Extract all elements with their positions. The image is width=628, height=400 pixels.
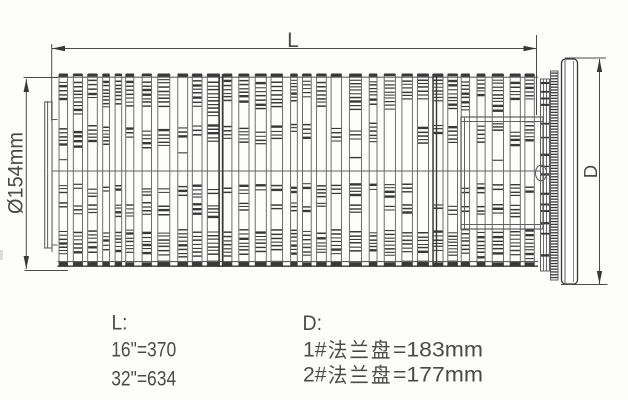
svg-text:L: L: [287, 29, 299, 52]
svg-text:32"=634: 32"=634: [111, 367, 176, 390]
svg-text:D:: D:: [303, 312, 323, 335]
svg-text:=183mm: =183mm: [393, 339, 483, 362]
svg-text:16"=370: 16"=370: [111, 338, 176, 361]
svg-text:1#: 1#: [303, 339, 327, 362]
svg-text:Ø154mm: Ø154mm: [4, 132, 28, 214]
svg-text:D: D: [580, 165, 601, 178]
svg-text:=177mm: =177mm: [393, 364, 483, 387]
svg-text:L:: L:: [112, 312, 128, 335]
svg-text:2#: 2#: [303, 364, 327, 387]
